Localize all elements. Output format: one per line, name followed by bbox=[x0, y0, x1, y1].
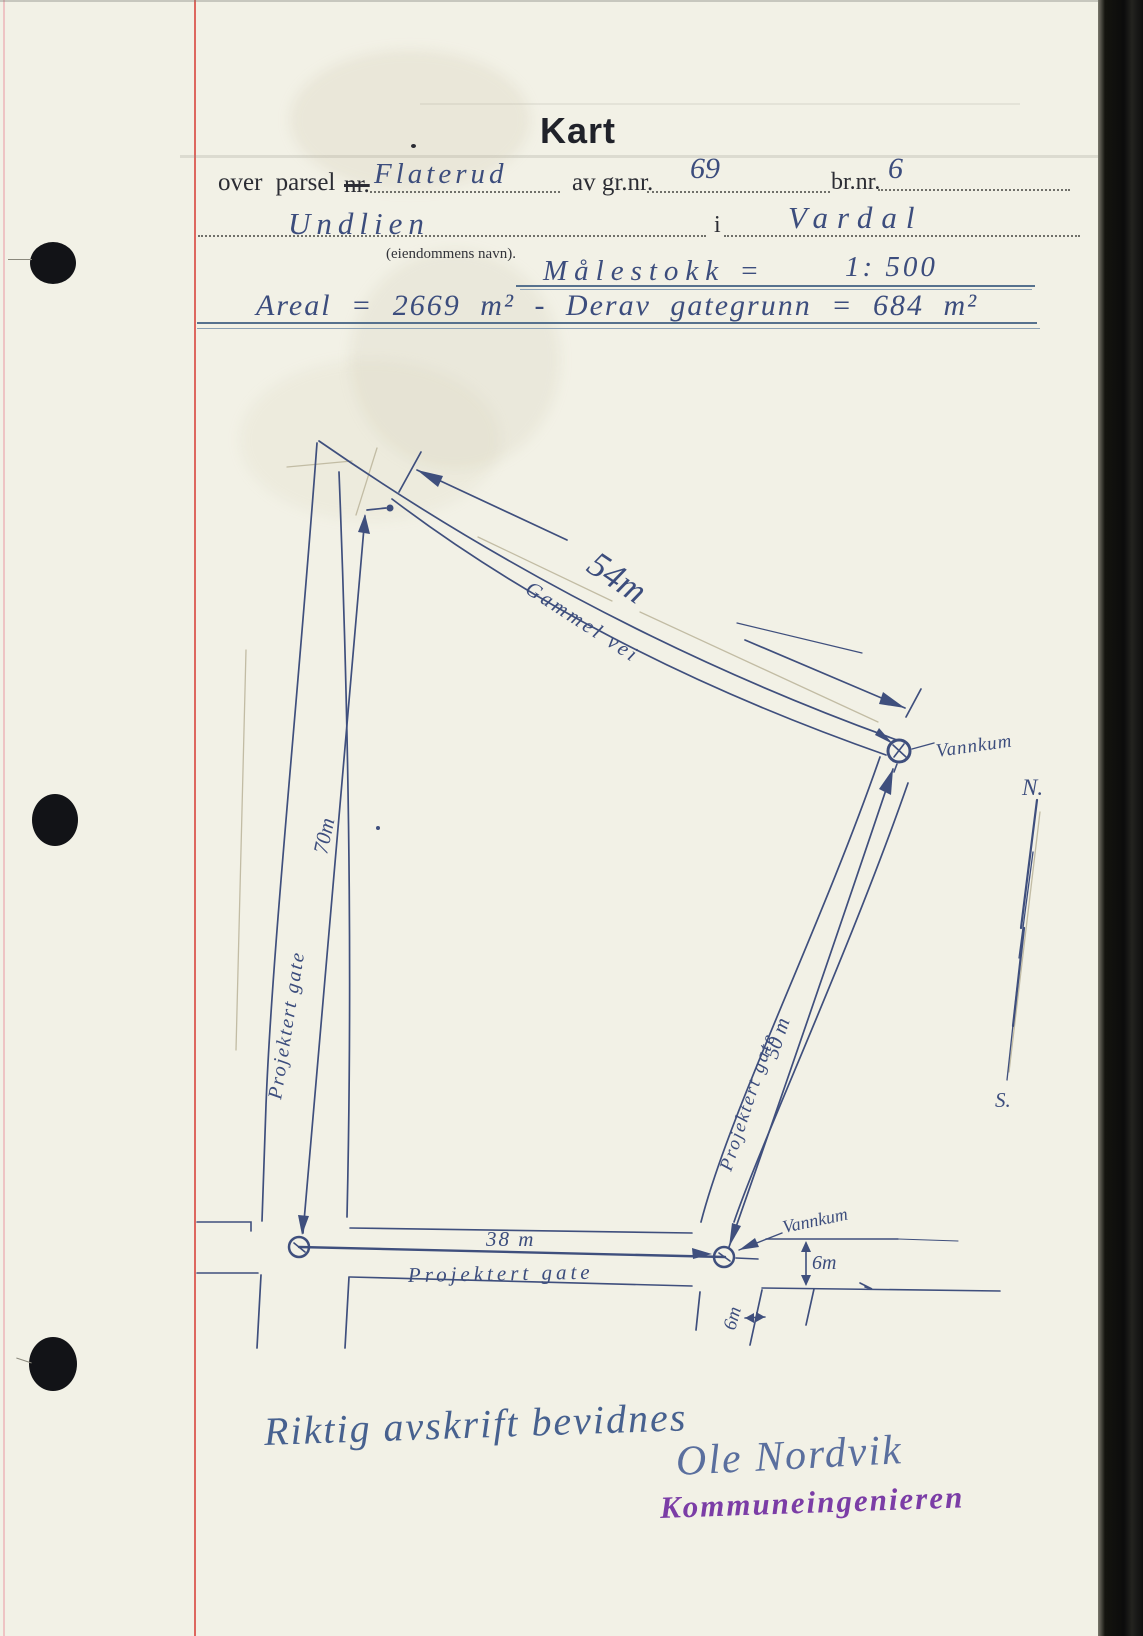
dimension-arrowhead bbox=[745, 1313, 754, 1323]
label-south-street-width: 6m bbox=[812, 1252, 836, 1274]
dimension-arrowhead bbox=[879, 692, 905, 708]
dimension-arrowhead bbox=[801, 1241, 811, 1252]
dimension-arrowhead bbox=[417, 470, 443, 487]
south-street-lines bbox=[197, 1222, 1000, 1318]
boundary-corner-dot bbox=[387, 505, 394, 512]
label-south-street-name: Projektert gate bbox=[407, 1260, 594, 1287]
label-west-street-dim: 70m bbox=[308, 816, 339, 856]
dimension-arrowhead bbox=[756, 1312, 765, 1322]
label-east-street-width: 6m bbox=[720, 1304, 746, 1332]
label-south-street-dim: 38 m bbox=[485, 1227, 535, 1251]
dimension-arrowhead bbox=[358, 514, 370, 534]
label-old-road-dim: 54m bbox=[581, 543, 655, 611]
survey-sketch: 54m Gammel vei Projektert gate 70m Proje… bbox=[0, 0, 1143, 1636]
label-manhole-bottom: Vannkum bbox=[781, 1204, 850, 1237]
dimension-arrowhead bbox=[739, 1238, 759, 1250]
dimension-arrowhead bbox=[729, 1223, 741, 1247]
dimension-arrowhead bbox=[879, 769, 893, 795]
label-north: N. bbox=[1021, 775, 1043, 800]
manhole-symbols bbox=[289, 740, 934, 1267]
label-south: S. bbox=[995, 1088, 1011, 1112]
dimension-arrowhead bbox=[875, 728, 893, 744]
label-east-street-dim: 50 m bbox=[759, 1015, 795, 1062]
east-street-dimension-line bbox=[729, 769, 893, 1247]
north-arrow-line bbox=[1007, 800, 1037, 1080]
dimension-arrowhead bbox=[801, 1275, 811, 1286]
west-street-lines bbox=[257, 443, 386, 1348]
west-street-dimension-line bbox=[303, 516, 365, 1233]
ink-speck bbox=[376, 826, 380, 830]
pencil-construction-lines bbox=[236, 448, 1040, 1072]
east-street-lines bbox=[696, 757, 908, 1345]
label-manhole-top: Vannkum bbox=[935, 730, 1014, 761]
